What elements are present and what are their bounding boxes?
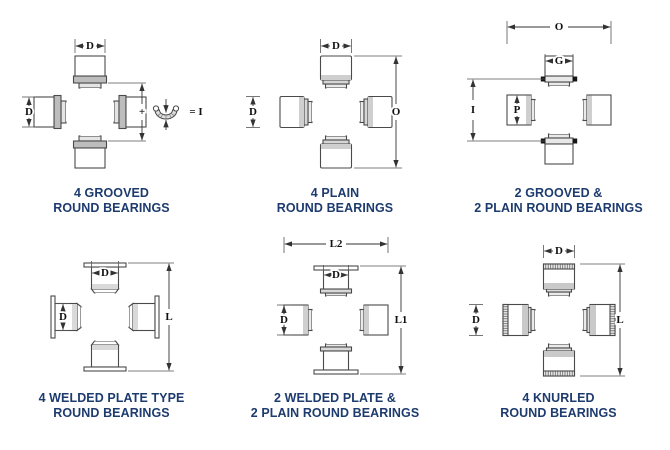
- caption: 4 GROOVED ROUND BEARINGS: [4, 185, 218, 215]
- ujoint-drawing: [51, 263, 159, 371]
- caption-line1: 4 PLAIN: [227, 185, 442, 200]
- dim-label-d-top: D: [555, 245, 563, 257]
- bearing-types-figure: D D + = I: [0, 0, 670, 450]
- ujoint-drawing: [34, 56, 146, 168]
- dim-label-p-cap: P: [514, 104, 521, 116]
- ujoint-drawing: [280, 56, 392, 168]
- dim-label-l2-overall: L2: [329, 238, 342, 250]
- dim-label-d-left: D: [472, 314, 480, 326]
- dim-label-d-left: D: [280, 314, 288, 326]
- diagram-4-plain-round-bearings: D D O: [224, 0, 447, 183]
- caption-line2: ROUND BEARINGS: [4, 405, 218, 420]
- dim-label-l-right: L: [616, 314, 623, 326]
- diagram-4-welded-plate-round-bearings: D D L: [0, 225, 223, 388]
- caption: 2 WELDED PLATE & 2 PLAIN ROUND BEARINGS: [227, 390, 442, 420]
- dim-label-g-cap: G: [555, 55, 564, 67]
- panel-4-knurled: D D L 4 KNURLED ROUND BEARINGS: [447, 225, 670, 450]
- ujoint-drawing: [284, 266, 388, 374]
- diagram-2-grooved-2-plain-round-bearings: O G I P: [447, 0, 670, 183]
- dim-label-o-right: O: [391, 106, 400, 118]
- dim-label-d-top: D: [86, 40, 94, 52]
- dim-label-d-left: D: [59, 311, 67, 323]
- caption-line1: 4 WELDED PLATE TYPE: [4, 390, 218, 405]
- caption-line1: 2 GROOVED &: [451, 185, 665, 200]
- caption: 2 GROOVED & 2 PLAIN ROUND BEARINGS: [451, 185, 665, 215]
- caption-line2: 2 PLAIN ROUND BEARINGS: [451, 200, 665, 215]
- caption-line2: ROUND BEARINGS: [451, 405, 665, 420]
- caption-line2: ROUND BEARINGS: [4, 200, 218, 215]
- ujoint-drawing: [507, 56, 611, 164]
- panel-4-grooved: D D + = I: [0, 0, 223, 225]
- diagram-4-grooved-round-bearings: D D + = I: [0, 0, 223, 183]
- snap-ring-icon: [153, 99, 178, 130]
- diagram-2-welded-2-plain-round-bearings: L2 D D L1: [224, 225, 447, 388]
- dim-label-d-left: D: [249, 106, 257, 118]
- caption-line1: 2 WELDED PLATE &: [227, 390, 442, 405]
- caption-line2: ROUND BEARINGS: [227, 200, 442, 215]
- dim-label-plus: +: [139, 106, 145, 118]
- panel-4-plain: D D O 4 PLAIN ROUND BEARINGS: [223, 0, 447, 225]
- ujoint-drawing: [503, 264, 615, 376]
- dim-label-l1-right: L1: [394, 314, 407, 326]
- dim-label-o-overall: O: [555, 21, 564, 33]
- caption: 4 PLAIN ROUND BEARINGS: [227, 185, 442, 215]
- caption-line1: 4 GROOVED: [4, 185, 218, 200]
- panel-2-grooved-2-plain: O G I P 2 GROOVED & 2 PLAIN ROUND BEARIN…: [447, 0, 670, 225]
- panel-2-welded-2-plain: L2 D D L1 2 WELDED PLATE & 2 PLAIN ROUND…: [223, 225, 447, 450]
- dim-label-l-right: L: [165, 311, 172, 323]
- dim-label-d-top: D: [332, 40, 340, 52]
- caption: 4 KNURLED ROUND BEARINGS: [451, 390, 665, 420]
- dim-label-i-left: I: [471, 104, 475, 116]
- dim-label-d-top: D: [101, 267, 109, 279]
- caption-line1: 4 KNURLED: [451, 390, 665, 405]
- panel-4-welded-plate: D D L 4 WELDED PLATE TYPE ROUND BEARINGS: [0, 225, 223, 450]
- caption-line2: 2 PLAIN ROUND BEARINGS: [227, 405, 442, 420]
- dim-label-d-left: D: [25, 106, 33, 118]
- dim-label-d-top: D: [332, 269, 340, 281]
- dim-label-equals-i: = I: [189, 106, 202, 118]
- caption: 4 WELDED PLATE TYPE ROUND BEARINGS: [4, 390, 218, 420]
- diagram-4-knurled-round-bearings: D D L: [447, 225, 670, 388]
